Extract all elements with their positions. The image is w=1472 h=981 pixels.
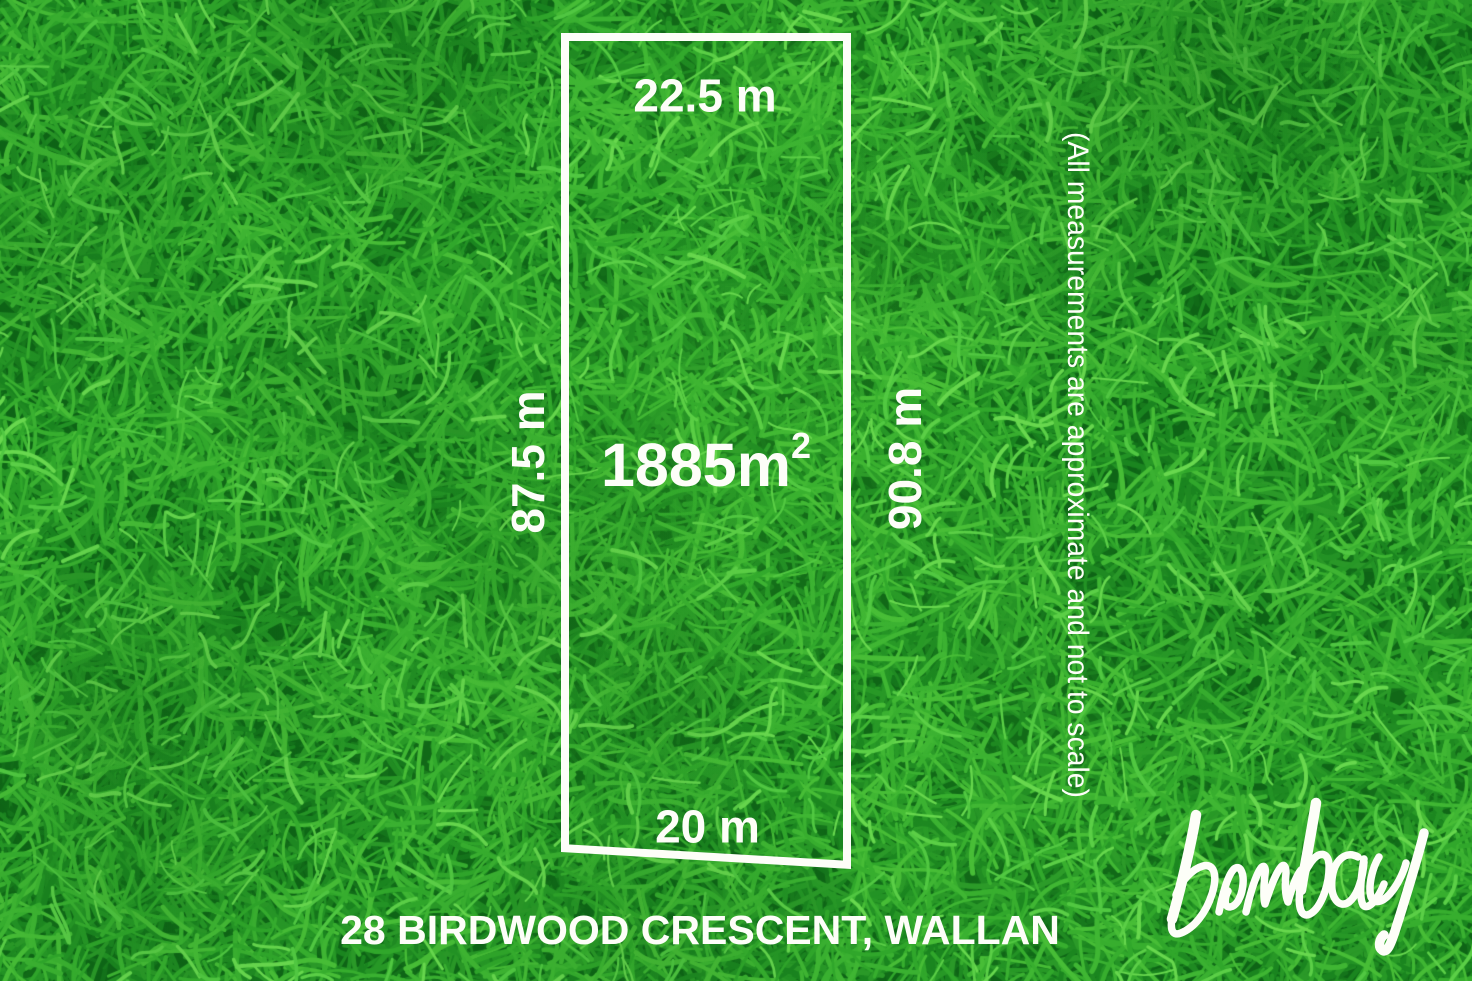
svg-text:1885m2: 1885m2: [601, 425, 811, 499]
svg-text:28 BIRDWOOD CRESCENT, WALLAN: 28 BIRDWOOD CRESCENT, WALLAN: [340, 907, 1060, 953]
svg-text:20 m: 20 m: [655, 801, 760, 853]
svg-text:87.5 m: 87.5 m: [502, 390, 554, 533]
svg-text:90.8 m: 90.8 m: [879, 387, 931, 530]
svg-text:22.5 m: 22.5 m: [633, 70, 776, 122]
svg-text:(All measurements are approxim: (All measurements are approximate and no…: [1061, 132, 1094, 798]
